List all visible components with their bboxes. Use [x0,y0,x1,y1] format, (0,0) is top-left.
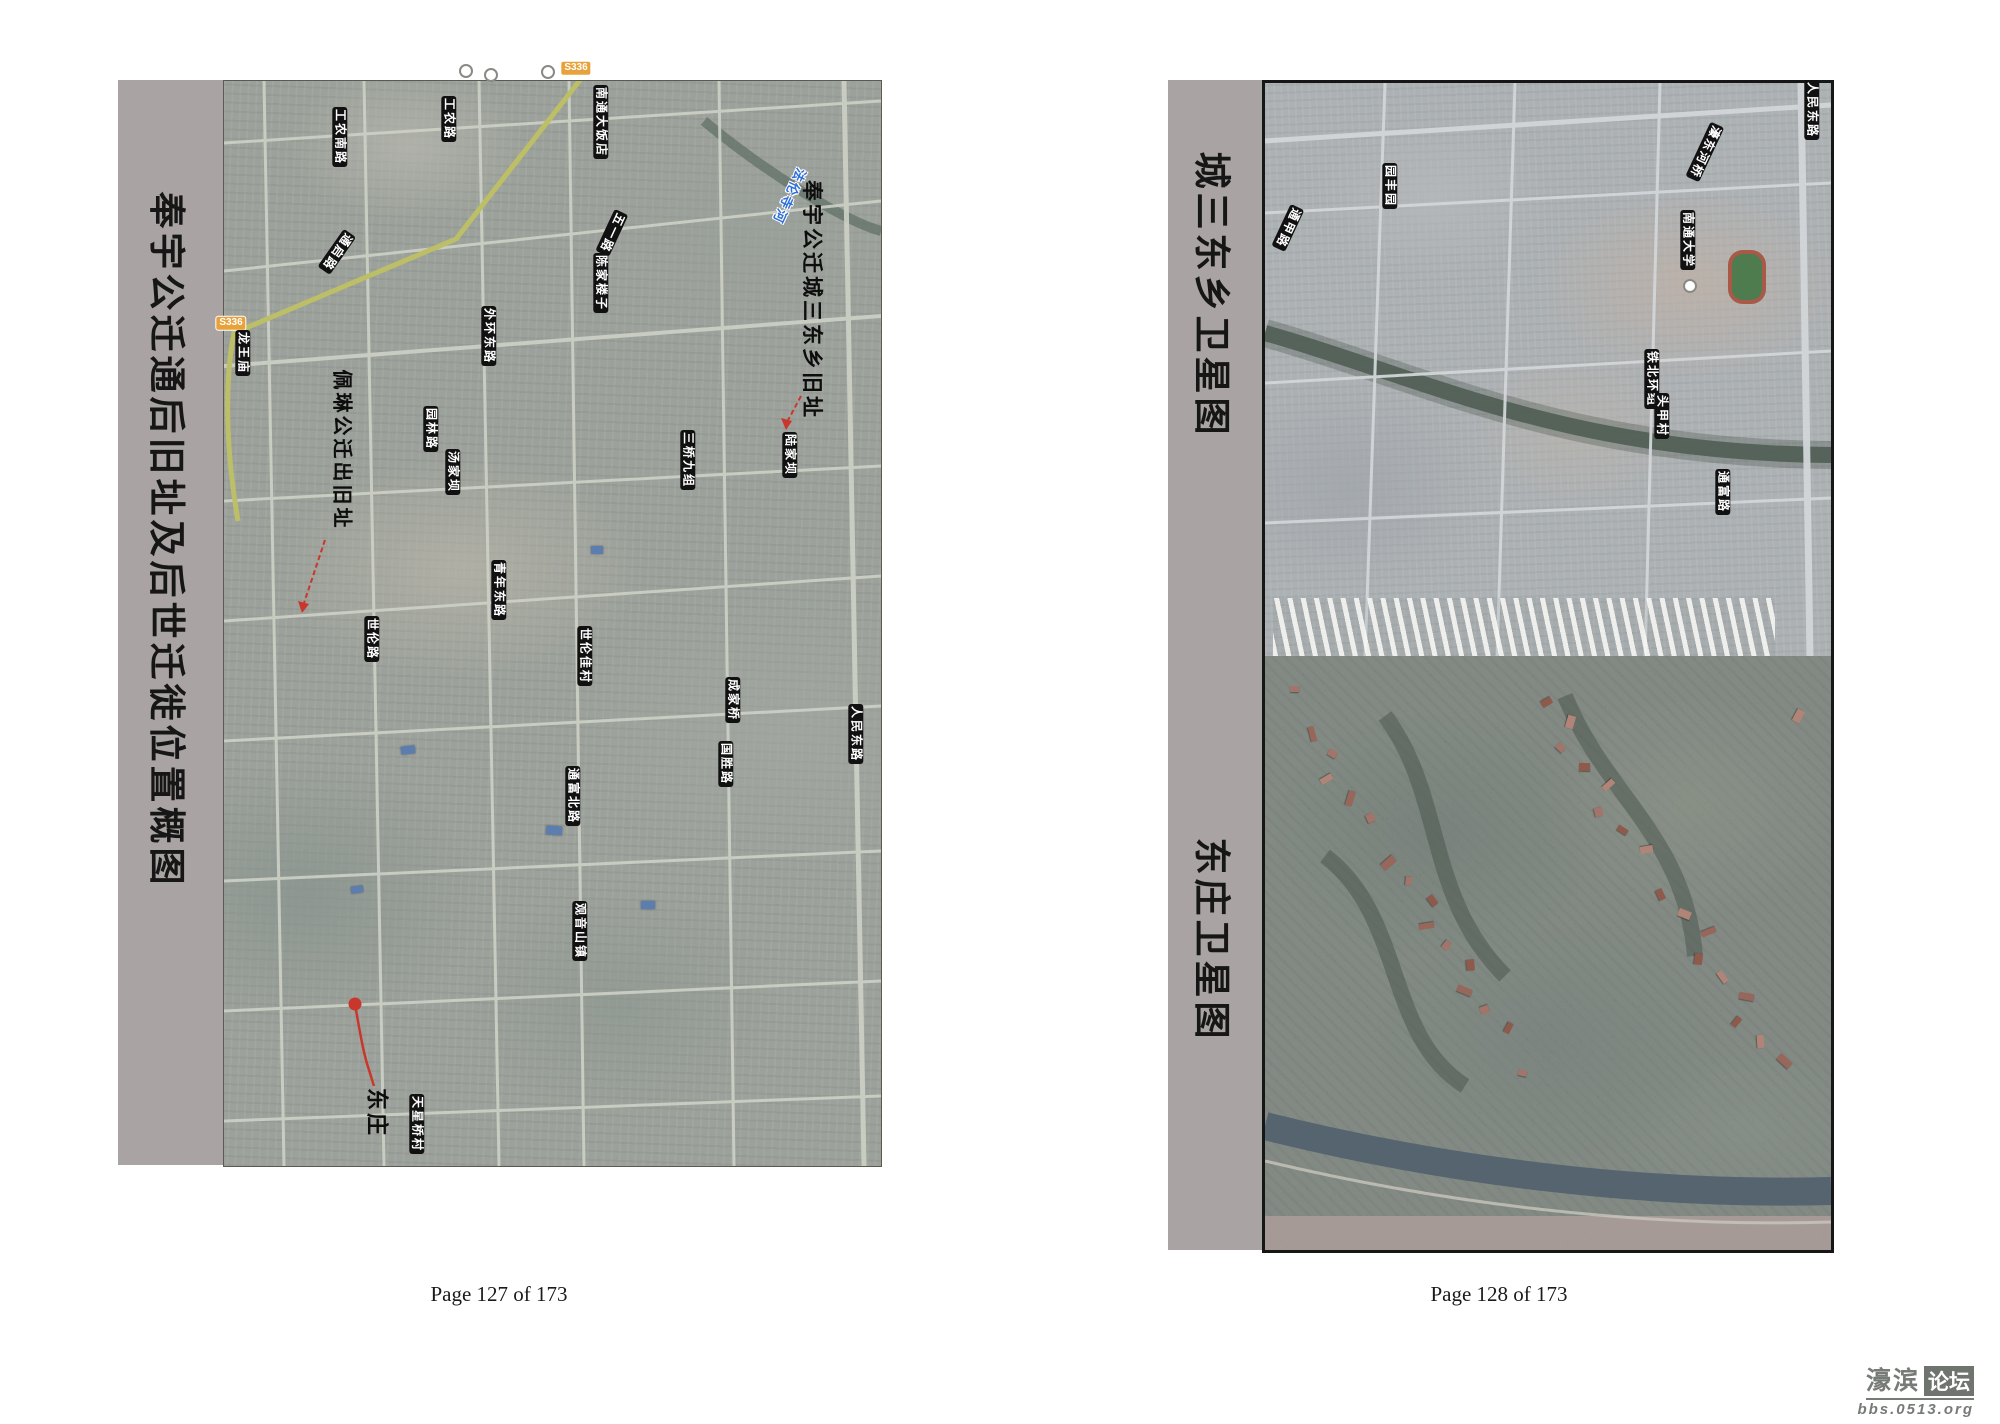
red-roof-house [1345,790,1356,806]
red-roof-house [1319,773,1333,785]
red-roof-house [1792,708,1805,723]
red-roof-house [1694,953,1703,965]
red-roof-house [1405,876,1412,886]
red-roof-house [1602,778,1616,791]
watermark-badge: 论坛 [1924,1366,1974,1396]
red-roof-house [1555,742,1566,753]
watermark-url: bbs.0513.org [1857,1401,1974,1418]
red-roof-house [1503,1022,1513,1035]
red-roof-house [1579,763,1590,771]
red-roof-house [1639,845,1653,854]
left-page-footer: Page 127 of 173 [118,1282,880,1307]
right-page-top-title: 城三东乡卫星图 [1188,152,1242,439]
watermark-site-name: 濠滨 [1866,1367,1920,1395]
right-title-bar: 城三东乡卫星图 东庄卫星图 [1168,80,1262,1250]
dongzhuang-roofs [1265,656,1831,1250]
dongzhuang-satellite-map [1262,656,1834,1253]
red-roof-house [1677,908,1692,920]
map-label-poi [541,65,555,79]
left-title-bar: 奉宇公迁通后旧址及后世迁徙位置概图 [118,80,223,1165]
blue-roof-building [591,546,603,554]
red-roof-house [1731,1016,1743,1028]
red-roof-house [1426,894,1438,907]
red-roof-house [1540,697,1553,709]
chengsan-satellite-map [1262,80,1834,662]
red-roof-house [1308,726,1318,742]
left-map-roads-graphic [224,81,881,1166]
red-roof-house [1716,970,1728,984]
document-canvas: 奉宇公迁通后旧址及后世迁徙位置概图 [0,0,2000,1424]
red-roof-house [1380,855,1397,871]
left-satellite-map [223,80,882,1167]
red-roof-house [1466,959,1475,971]
stadium-field [1728,250,1766,304]
red-roof-house [1517,1069,1527,1077]
blue-roof-building [641,901,655,909]
red-roof-house [1738,992,1754,1002]
red-roof-house [1441,940,1452,951]
red-roof-house [1700,927,1716,938]
right-page-footer: Page 128 of 173 [1168,1282,1830,1307]
red-roof-house [1479,1005,1490,1016]
map-label-shield: S336 [560,61,591,76]
blue-roof-building [546,825,563,835]
blue-roof-building [401,745,416,754]
watermark-title: 濠滨论坛 [1866,1361,1974,1400]
red-roof-house [1776,1053,1792,1069]
red-roof-house [1365,812,1376,824]
map-label-poi [459,64,473,78]
red-roof-house [1419,922,1435,930]
red-roof-house [1290,686,1299,692]
red-roof-house [1456,984,1473,996]
red-roof-house [1616,824,1628,835]
forum-watermark: 濠滨论坛 bbs.0513.org [1857,1361,1974,1418]
top-map-roads-graphic [1265,83,1831,659]
greenhouse-rows [1273,598,1775,656]
red-roof-house [1327,748,1338,759]
red-roof-house [1565,715,1576,730]
red-roof-house [1594,807,1604,818]
left-page-title: 奉宇公迁通后旧址及后世迁徙位置概图 [143,192,197,889]
right-page-bottom-title: 东庄卫星图 [1188,838,1242,1043]
red-roof-house [1757,1035,1765,1048]
red-roof-house [1655,888,1666,901]
